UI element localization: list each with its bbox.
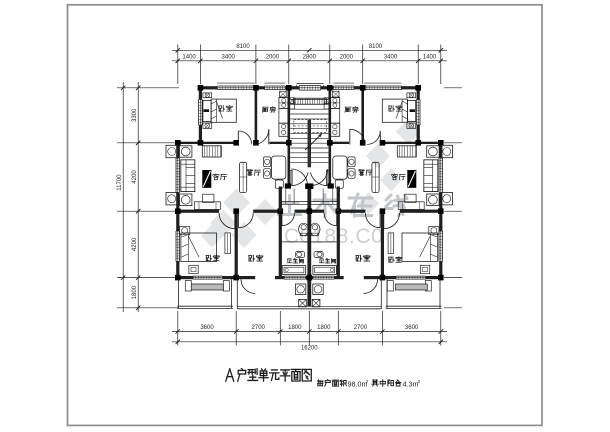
svg-text:3600: 3600 bbox=[200, 325, 214, 331]
svg-text:1800: 1800 bbox=[288, 325, 302, 331]
svg-text:2: 2 bbox=[418, 379, 421, 385]
svg-text:16200: 16200 bbox=[301, 346, 318, 352]
svg-text:3600: 3600 bbox=[405, 325, 419, 331]
svg-text:8100: 8100 bbox=[236, 44, 250, 50]
svg-text:2700: 2700 bbox=[354, 325, 368, 331]
svg-text:1400: 1400 bbox=[182, 54, 196, 60]
svg-text:2700: 2700 bbox=[252, 325, 266, 331]
svg-text:4.3m: 4.3m bbox=[403, 380, 419, 389]
svg-text:3400: 3400 bbox=[384, 54, 398, 60]
svg-text:2000: 2000 bbox=[266, 54, 280, 60]
svg-text:1800: 1800 bbox=[317, 325, 331, 331]
svg-text:2800: 2800 bbox=[303, 54, 317, 60]
svg-text:4200: 4200 bbox=[132, 170, 138, 184]
svg-text:98.0m: 98.0m bbox=[348, 380, 368, 389]
svg-text:3300: 3300 bbox=[132, 108, 138, 122]
svg-text:3400: 3400 bbox=[222, 54, 236, 60]
svg-text:1400: 1400 bbox=[423, 54, 437, 60]
svg-text:2: 2 bbox=[366, 379, 369, 385]
svg-text:4200: 4200 bbox=[132, 237, 138, 251]
svg-text:2000: 2000 bbox=[340, 54, 354, 60]
svg-text:11700: 11700 bbox=[117, 174, 123, 191]
svg-text:8100: 8100 bbox=[369, 44, 383, 50]
svg-text:1800: 1800 bbox=[132, 285, 138, 299]
